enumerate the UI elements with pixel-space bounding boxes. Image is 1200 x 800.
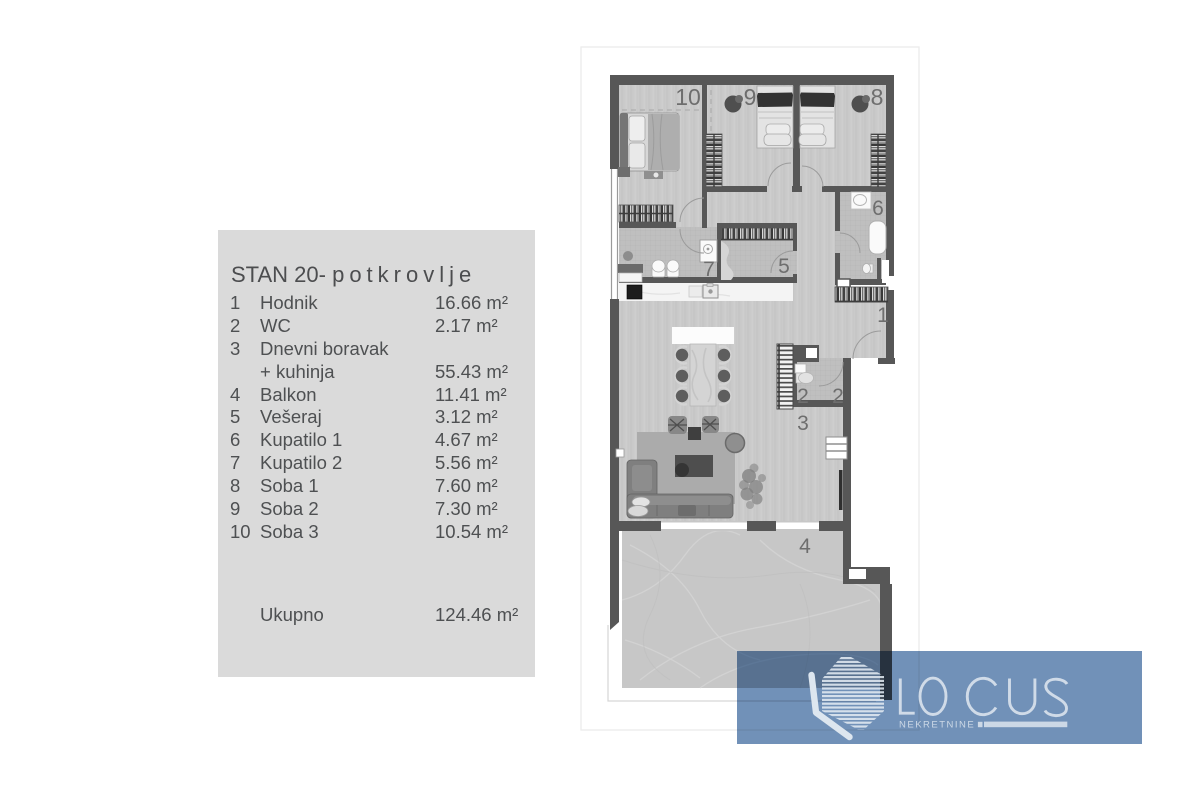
svg-text:10: 10 xyxy=(675,84,701,110)
svg-text:7: 7 xyxy=(703,258,715,281)
svg-text:NEKRETNINE: NEKRETNINE xyxy=(899,720,975,731)
svg-text:4: 4 xyxy=(799,535,811,558)
svg-text:9: 9 xyxy=(744,84,757,110)
svg-text:1: 1 xyxy=(877,304,889,327)
svg-text:2: 2 xyxy=(832,385,844,408)
svg-text:5: 5 xyxy=(778,255,790,278)
svg-text:8: 8 xyxy=(871,84,884,110)
svg-text:2: 2 xyxy=(797,385,809,408)
svg-text:3: 3 xyxy=(797,412,809,435)
svg-text:6: 6 xyxy=(872,197,884,220)
